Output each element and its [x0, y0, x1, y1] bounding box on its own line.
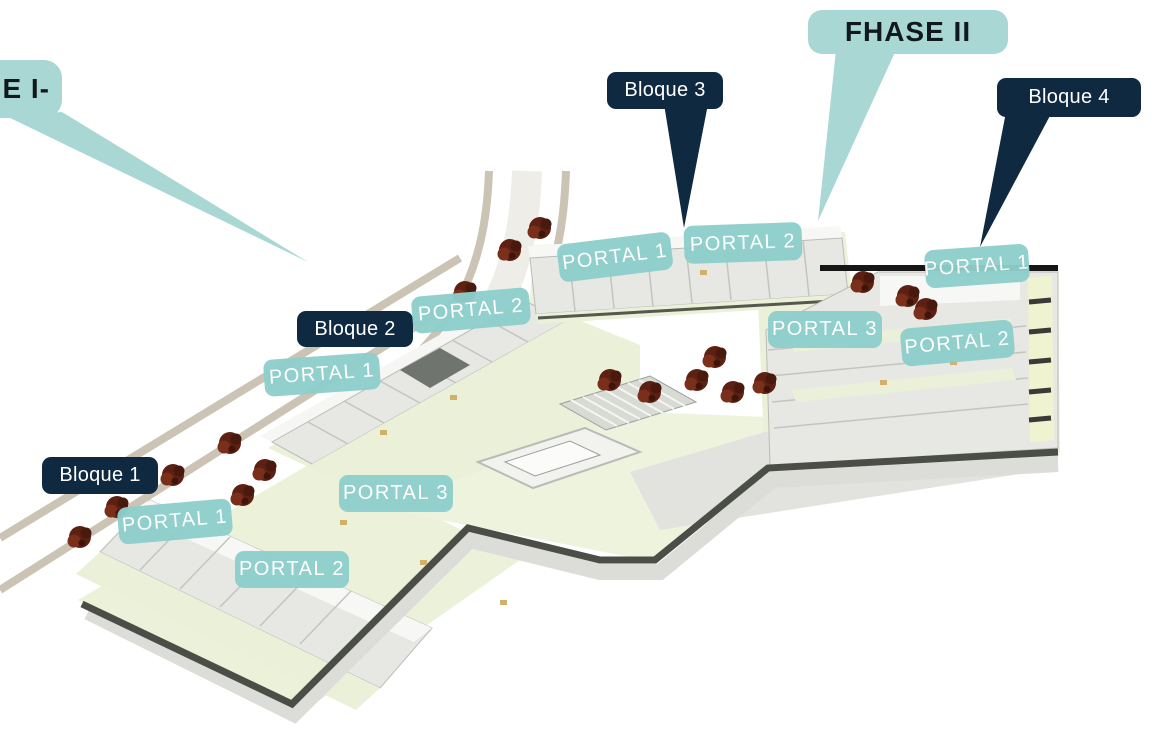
site-plan-illustration: [0, 0, 1170, 731]
callout-bloque-4: Bloque 4: [997, 78, 1141, 117]
bloque-4-portal-2-label: PORTAL 2: [904, 327, 1012, 359]
bloque-3-label: Bloque 3: [624, 79, 705, 102]
phase2-tail: [818, 50, 896, 221]
callout-bloque-1: Bloque 1: [42, 457, 158, 494]
bloque-4-portal-3-label: PORTAL 3: [772, 318, 878, 341]
bloque-3-portal-1-label: PORTAL 1: [561, 239, 669, 275]
callout-bloque-4-portal-3: PORTAL 3: [768, 311, 882, 348]
bloque-2-portal-2-label: PORTAL 2: [417, 294, 525, 326]
site-plan-screenshot: E I- FHASE II Bloque 1 Bloque 2 Bloque 3…: [0, 0, 1170, 731]
bloque-2-portal-1-label: PORTAL 1: [268, 359, 375, 389]
callout-bloque-1-portal-2: PORTAL 2: [235, 551, 349, 588]
bloque-2-label: Bloque 2: [314, 318, 395, 341]
bloque-1-portal-2-label: PORTAL 2: [239, 558, 345, 581]
callout-bloque-3: Bloque 3: [607, 72, 723, 109]
callout-bloque-3-portal-2: PORTAL 2: [683, 222, 802, 264]
bloque-3-portal-2-label: PORTAL 2: [690, 230, 797, 257]
bloque-1-label: Bloque 1: [59, 464, 140, 487]
bloque-1-portal-1-label: PORTAL 1: [121, 505, 229, 537]
phase-1-label: E I-: [2, 73, 50, 105]
callout-phase-2: FHASE II: [808, 10, 1008, 54]
bloque-4-portal-1-label: PORTAL 1: [923, 251, 1030, 281]
bloque3-tail: [664, 104, 708, 228]
phase-2-label: FHASE II: [845, 16, 971, 48]
phase1-tail: [6, 112, 308, 262]
callout-bloque-2: Bloque 2: [297, 311, 413, 347]
callout-bloque-1-portal-3: PORTAL 3: [339, 475, 453, 512]
bloque4-tail: [980, 112, 1052, 247]
bloque-1-portal-3-label: PORTAL 3: [343, 482, 449, 505]
callout-phase-1: E I-: [0, 60, 62, 118]
bloque-4-label: Bloque 4: [1028, 86, 1109, 109]
callout-bloque-4-portal-1: PORTAL 1: [924, 243, 1030, 288]
